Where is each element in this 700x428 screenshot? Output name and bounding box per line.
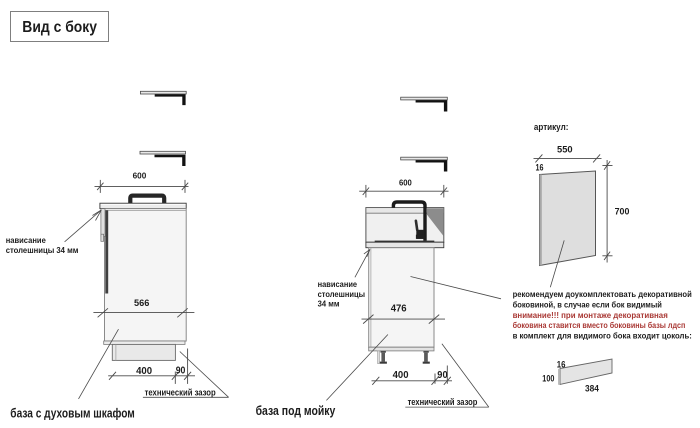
svg-text:столешницы 34 мм: столешницы 34 мм [6,245,79,255]
svg-text:рекомендуем доукомплектовать д: рекомендуем доукомплектовать декоративно… [513,289,692,299]
svg-text:база с духовым шкафом: база с духовым шкафом [10,407,135,421]
svg-text:в комплект для видимого бока в: в комплект для видимого бока входит цоко… [513,331,692,341]
svg-text:нависание: нависание [318,279,358,289]
svg-text:550: 550 [557,145,573,156]
svg-text:столешницы: столешницы [318,289,365,299]
svg-text:боковиной, в случае если бок в: боковиной, в случае если бок видимый [513,299,662,309]
svg-text:600: 600 [133,170,147,180]
svg-text:нависание: нависание [6,235,46,245]
svg-text:384: 384 [585,384,600,395]
svg-text:566: 566 [134,298,149,309]
svg-text:внимание!!! при монтаже декора: внимание!!! при монтаже декоративная [513,310,668,320]
svg-text:100: 100 [542,374,554,385]
svg-text:90: 90 [176,366,186,377]
svg-text:боковина ставится вместо боков: боковина ставится вместо боковины базы л… [513,320,686,330]
svg-text:400: 400 [393,370,409,381]
svg-text:артикул:: артикул: [534,122,569,132]
svg-text:400: 400 [136,366,152,377]
svg-text:700: 700 [615,206,630,217]
svg-text:16: 16 [557,360,566,371]
svg-text:90: 90 [437,370,448,381]
svg-text:600: 600 [399,178,412,188]
svg-text:16: 16 [536,163,544,174]
svg-text:технический зазор: технический зазор [145,388,216,398]
svg-text:технический зазор: технический зазор [408,397,478,407]
svg-text:476: 476 [391,303,407,314]
svg-text:34 мм: 34 мм [318,299,340,309]
svg-text:база под мойку: база под мойку [256,404,336,418]
svg-text:Вид с боку: Вид с боку [22,19,97,36]
